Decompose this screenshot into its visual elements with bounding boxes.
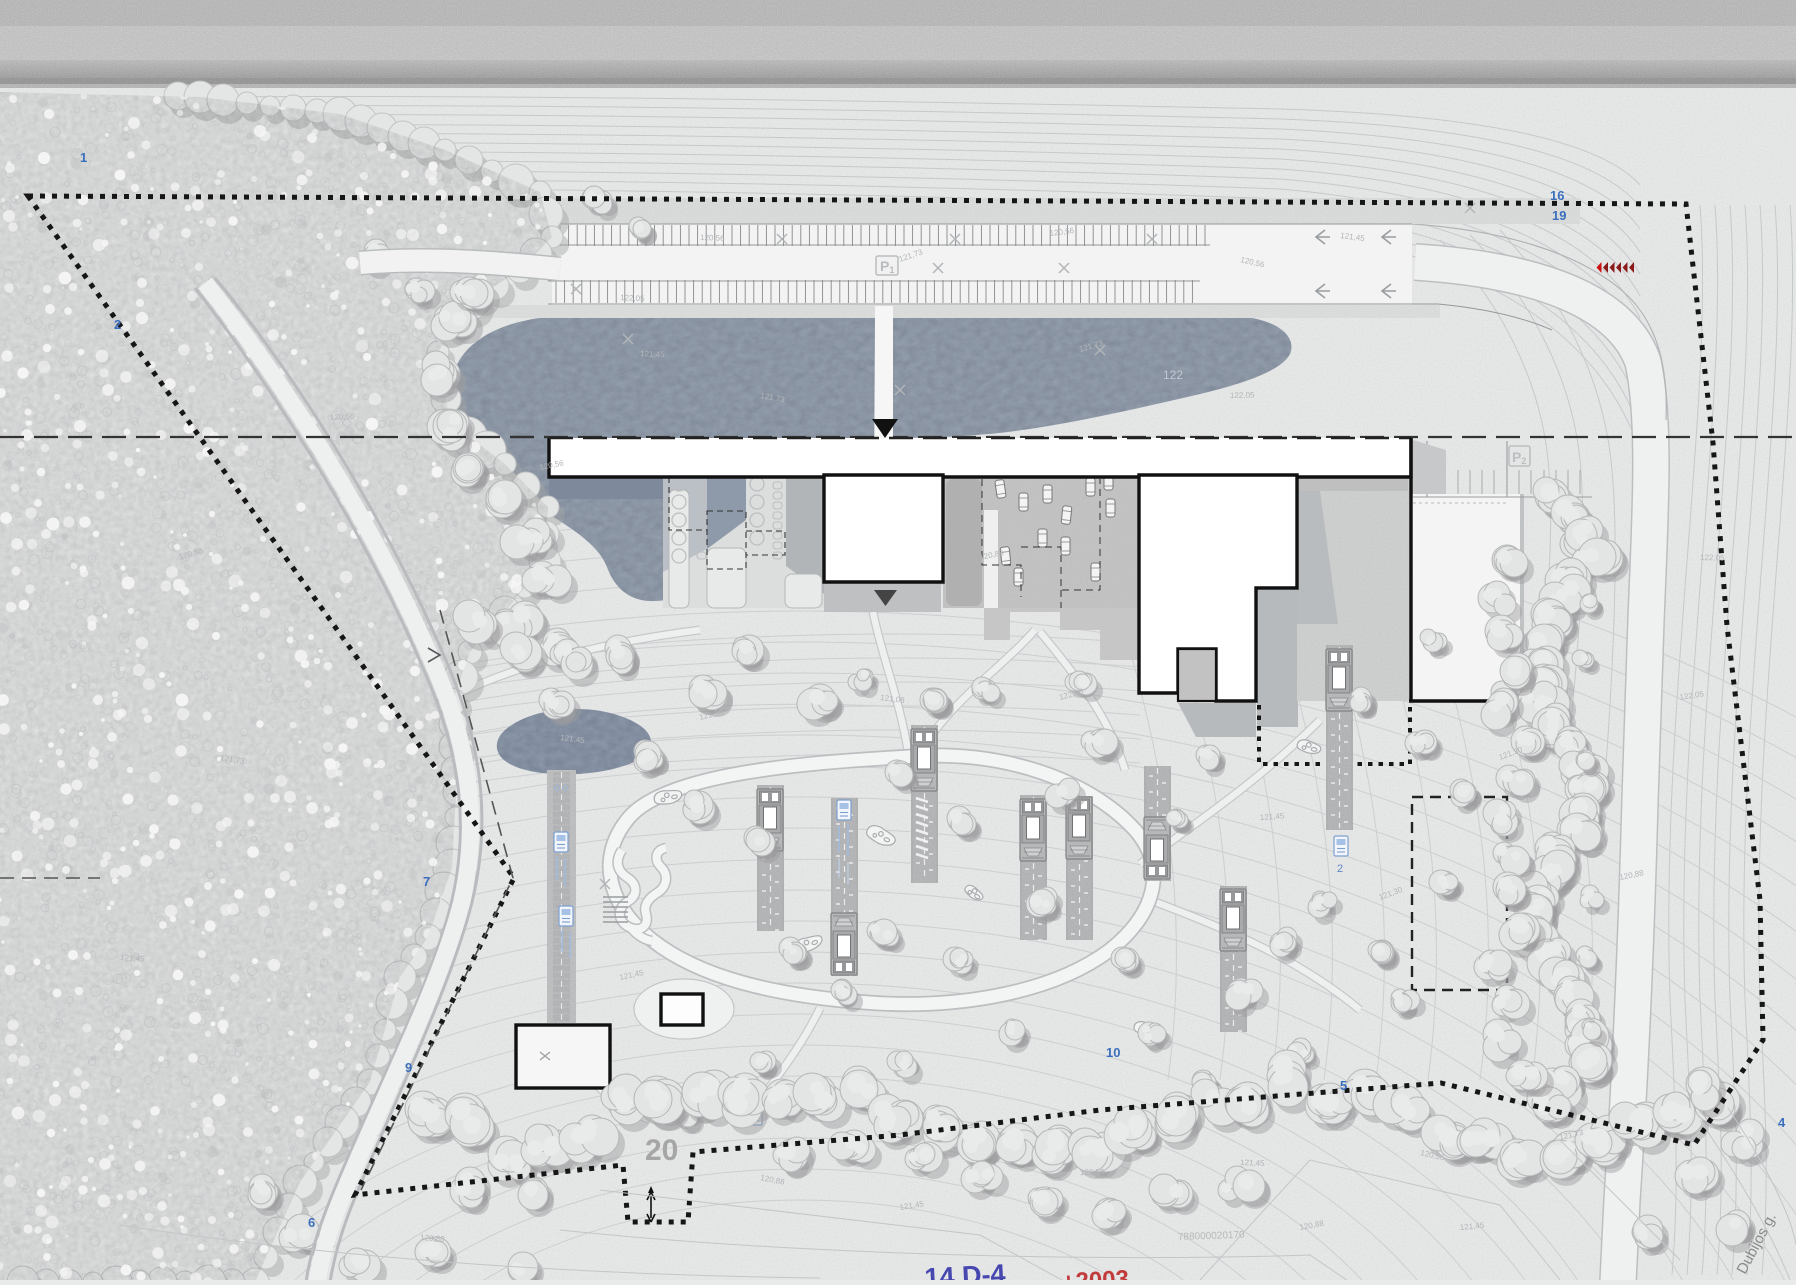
svg-text:122: 122 — [1163, 368, 1183, 382]
svg-text:2: 2 — [1337, 863, 1343, 875]
